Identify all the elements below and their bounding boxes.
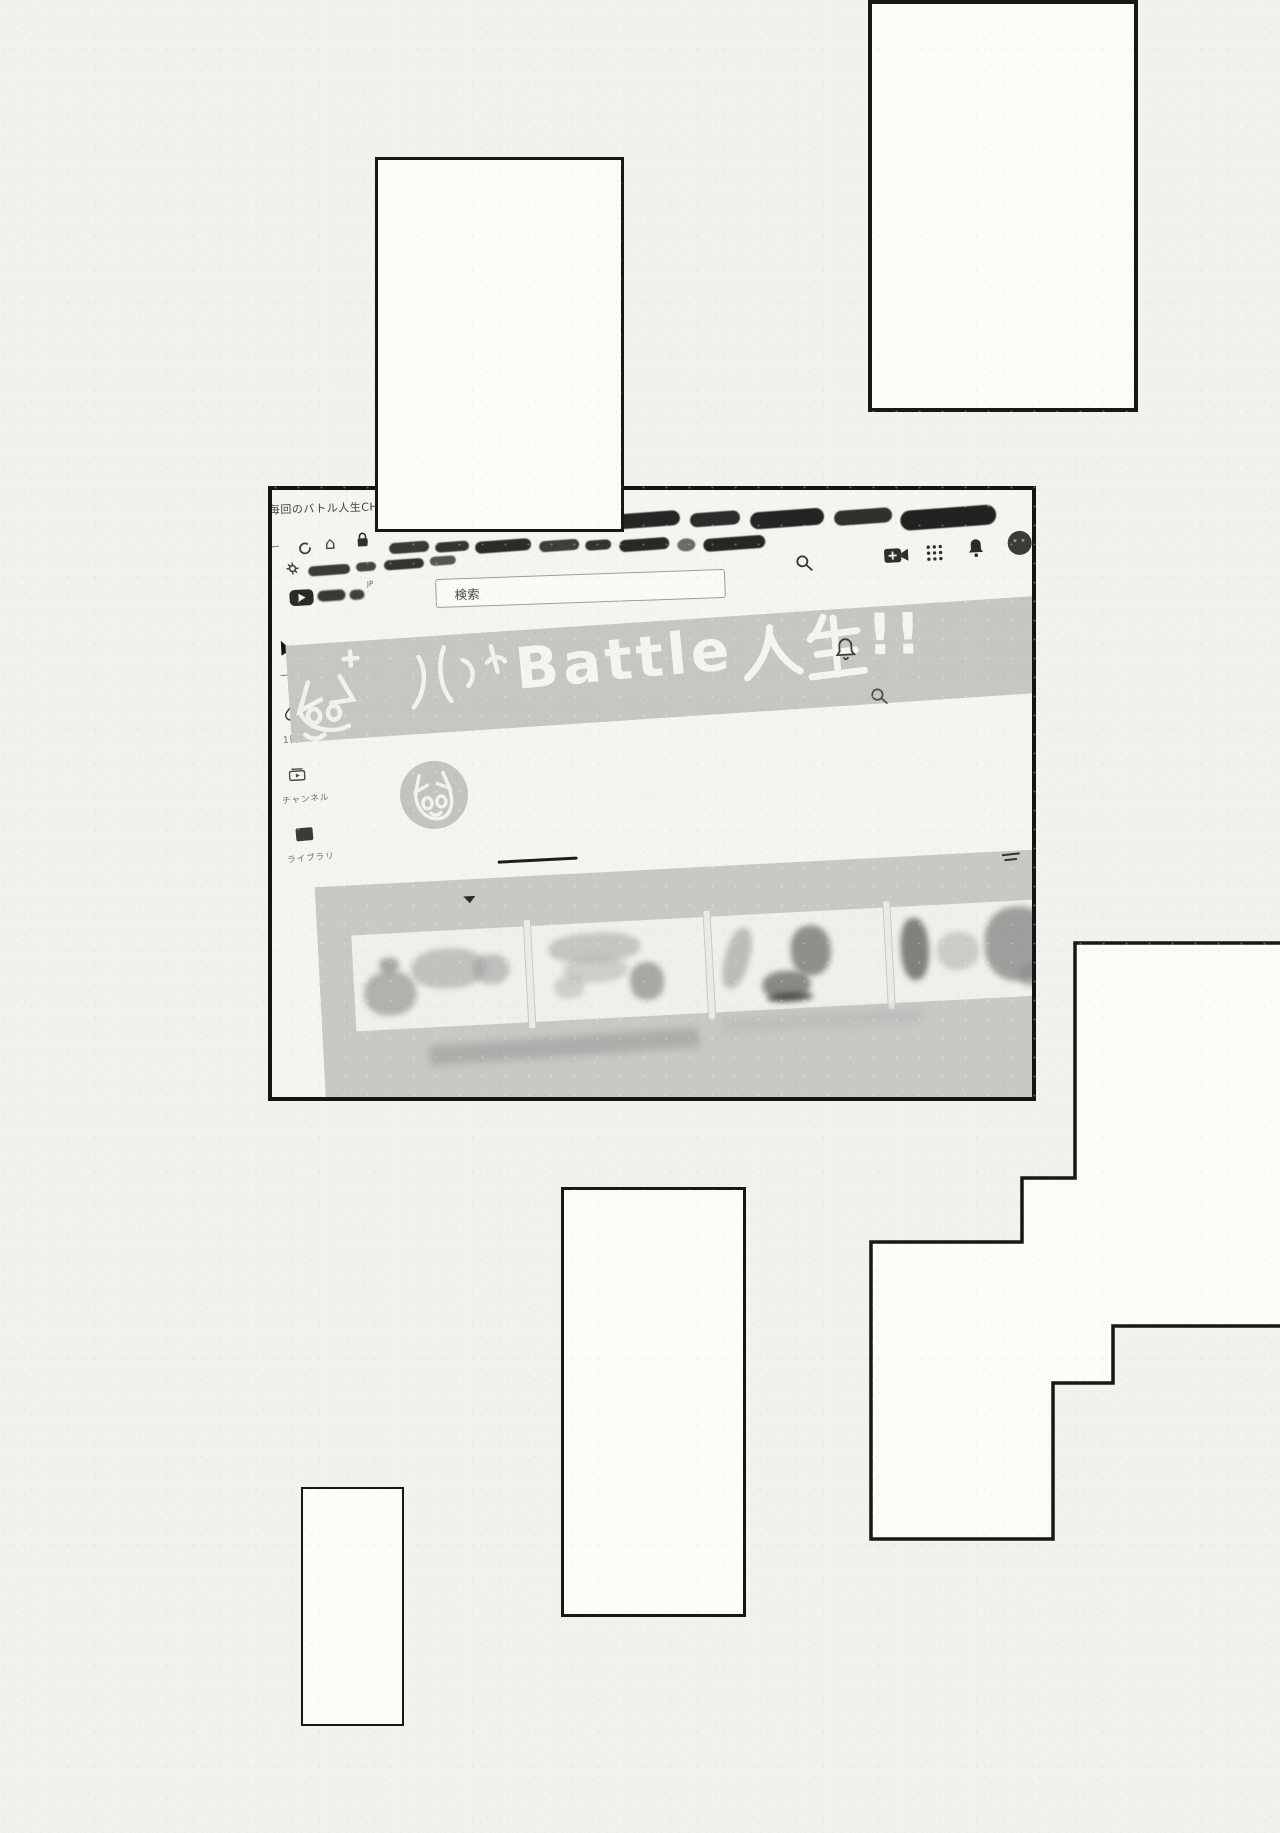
- video-thumbnail[interactable]: [531, 917, 708, 1022]
- scribbled-url: [539, 539, 580, 553]
- scribbled-url: [475, 538, 532, 554]
- empty-panel-bottom-center: [561, 1187, 746, 1617]
- empty-panel-upper-middle: [375, 157, 624, 532]
- video-thumbnail[interactable]: [351, 926, 528, 1031]
- empty-panel-top-right: [868, 0, 1138, 412]
- home-icon[interactable]: ⌂: [324, 534, 336, 555]
- scribbled-bookmark: [356, 561, 377, 571]
- scribbled-bookmark: [430, 555, 457, 566]
- search-icon[interactable]: [794, 553, 814, 573]
- locale-superscript: JP: [367, 580, 374, 588]
- caption-smudge: [429, 1027, 700, 1066]
- youtube-wordmark-scribble: [349, 589, 365, 600]
- subscriptions-icon[interactable]: [288, 768, 306, 782]
- channel-bell-icon[interactable]: [834, 637, 856, 661]
- library-icon[interactable]: [295, 827, 313, 841]
- youtube-logo-icon[interactable]: [289, 589, 314, 606]
- scribbled-tab: [900, 504, 997, 531]
- scribbled-url: [677, 538, 696, 552]
- channel-search-icon[interactable]: [869, 686, 889, 706]
- channel-avatar[interactable]: [398, 759, 469, 830]
- scribbled-url: [435, 540, 470, 552]
- search-input[interactable]: 検索: [435, 569, 726, 608]
- drawn-browser-window: 毎回のバトル人生CH - Yo ← ⌂: [270, 486, 1036, 1101]
- reload-icon[interactable]: [297, 540, 314, 557]
- scribbled-url: [585, 539, 612, 551]
- notifications-bell-icon[interactable]: [967, 538, 984, 558]
- active-tab-underline: [498, 857, 578, 864]
- scanned-comic-page: 毎回のバトル人生CH - Yo ← ⌂: [0, 0, 1280, 1833]
- scribbled-tab: [690, 510, 741, 528]
- gear-icon[interactable]: [286, 562, 300, 576]
- scribbled-bookmark: [384, 558, 425, 571]
- scribbled-url: [619, 537, 670, 553]
- scribbled-url: [703, 535, 766, 553]
- sort-dropdown-icon[interactable]: [463, 896, 475, 904]
- avatar-cat-drawing: [398, 759, 469, 830]
- videos-section: [315, 847, 1036, 1101]
- back-icon[interactable]: ←: [268, 539, 280, 556]
- sidebar-item-subscriptions[interactable]: チャンネル: [282, 791, 330, 807]
- empty-panel-bottom-left: [301, 1487, 404, 1726]
- scribbled-tab: [834, 507, 893, 526]
- profile-avatar[interactable]: [1007, 530, 1032, 555]
- video-thumbnail[interactable]: [711, 908, 888, 1013]
- sidebar-item-library[interactable]: ライブラリ: [287, 849, 335, 865]
- scribbled-url: [389, 540, 430, 554]
- youtube-wordmark-scribble: [317, 589, 346, 602]
- caption-smudge: [722, 1008, 923, 1033]
- channel-banner-art: Battle: [285, 596, 1036, 743]
- banner-kanji-hito: [737, 618, 805, 689]
- apps-grid-icon[interactable]: [926, 544, 944, 562]
- create-video-icon[interactable]: [884, 546, 910, 565]
- search-placeholder: 検索: [454, 584, 480, 604]
- scribbled-bookmark: [308, 564, 351, 577]
- browser-screenshot-panel: 毎回のバトル人生CH - Yo ← ⌂: [268, 486, 1036, 1101]
- lock-icon: [356, 532, 369, 548]
- scribbled-tab: [750, 507, 825, 529]
- filter-icon[interactable]: [1002, 852, 1021, 866]
- banner-title-suffix: !!: [866, 602, 923, 669]
- video-thumbnail[interactable]: [891, 898, 1036, 1003]
